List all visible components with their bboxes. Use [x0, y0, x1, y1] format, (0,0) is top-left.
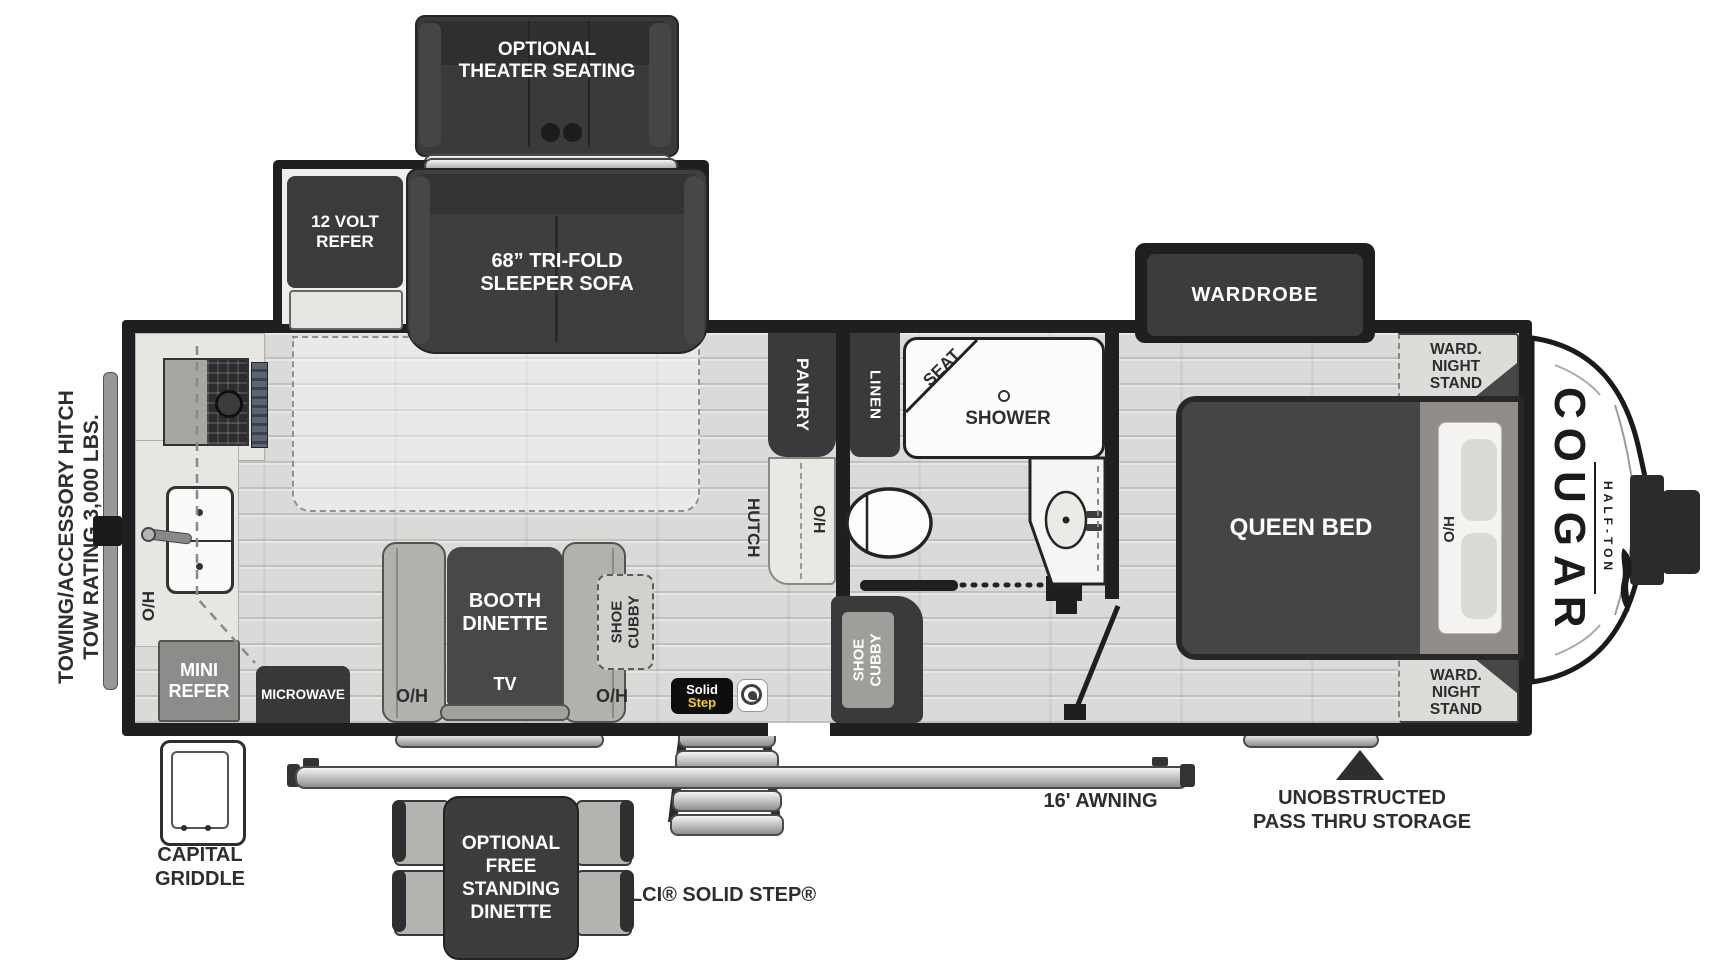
mini-refer-line2: REFER — [168, 681, 229, 702]
sofa-label: 68” TRI-FOLD SLEEPER SOFA — [408, 250, 706, 296]
shower-drain-icon — [998, 390, 1010, 402]
oh-right-label: O/H — [582, 686, 642, 707]
booth-line2: DINETTE — [447, 613, 563, 636]
bed-oh-label-wrap: O/H — [1437, 499, 1461, 559]
range-vent — [251, 362, 268, 448]
free-dinette-label: OPTIONAL FREE STANDING DINETTE — [462, 832, 560, 924]
brand-cougar: COUGAR — [1542, 362, 1596, 662]
refer-line2: REFER — [311, 232, 379, 252]
shoe-cubby-dinette-label: SHOE CUBBY — [609, 595, 643, 648]
rv-floorplan: TOWING/ACCESSORY HITCH TOW RATING 3,000 … — [0, 0, 1720, 968]
bed-oh-cabinet: O/H — [1438, 422, 1502, 634]
pillow-2 — [1461, 533, 1497, 619]
kingpin-box — [1662, 490, 1700, 574]
griddle-knob-1 — [181, 825, 187, 831]
mini-refer-label: MINI REFER — [168, 660, 229, 702]
lci-logo-icon — [737, 679, 768, 712]
free-dinette-line2: FREE — [462, 855, 560, 878]
shoe-cubby-bath-plate: SHOE CUBBY — [842, 612, 894, 708]
free-dinette-table: OPTIONAL FREE STANDING DINETTE — [443, 796, 579, 960]
queen-bed: QUEEN BED — [1182, 402, 1420, 654]
passthru-line1: UNOBSTRUCTED — [1237, 786, 1487, 810]
theater-label-line2: THEATER SEATING — [417, 61, 677, 83]
awning-cap-right — [1180, 764, 1195, 787]
free-dinette-chair-bl — [394, 870, 450, 936]
capital-griddle-inner — [171, 751, 229, 829]
lci-swirl — [748, 691, 757, 700]
awning-nub-right — [1152, 757, 1168, 766]
free-dinette-chair-tr — [576, 800, 632, 866]
pocket-door-panel — [860, 580, 958, 591]
microwave-label: MICROWAVE — [261, 687, 345, 702]
awning-tube — [295, 766, 1189, 789]
bed-oh-label: O/H — [1441, 516, 1458, 543]
sofa-back — [414, 174, 700, 214]
entry-door-opening — [765, 723, 833, 736]
free-dinette-line1: OPTIONAL — [462, 832, 560, 855]
burner-icon — [215, 390, 243, 418]
tv-label: TV — [447, 674, 563, 695]
shoe-cubby-line2: CUBBY — [626, 595, 643, 648]
hitch-receiver — [93, 516, 122, 546]
shower-seat-label: SEAT — [905, 331, 979, 405]
solid-step-badge: Solid Step — [671, 678, 733, 714]
sofa-line2: SLEEPER SOFA — [408, 273, 706, 296]
nightstand-bottom-label: WARD. NIGHT STAND — [1400, 667, 1512, 718]
slideout-footprint — [292, 336, 700, 512]
passthru-arrow-icon — [1336, 750, 1384, 780]
pocket-door-jamb-tab — [1056, 600, 1077, 614]
hutch-label: HUTCH — [743, 498, 763, 558]
sofa-line1: 68” TRI-FOLD — [408, 250, 706, 273]
sink-drain-2 — [196, 563, 203, 570]
wardrobe: WARDROBE — [1147, 254, 1363, 336]
sink-faucet-knob — [141, 527, 156, 542]
cooktop-griddle — [165, 360, 207, 444]
ns-line3: STAND — [1400, 701, 1512, 718]
wardrobe-label: WARDROBE — [1192, 284, 1319, 307]
refer-counter — [289, 290, 403, 330]
hutch-dash — [800, 463, 802, 579]
passthru-line2: PASS THRU STORAGE — [1237, 810, 1487, 834]
shower: SHOWER SEAT — [903, 337, 1105, 459]
linen-label: LINEN — [867, 370, 884, 420]
nightstand-bottom: WARD. NIGHT STAND — [1398, 657, 1519, 723]
oh-left-label: O/H — [382, 686, 442, 707]
pillow-1 — [1461, 439, 1497, 521]
step-tread-4 — [670, 814, 784, 836]
ns-line2: NIGHT — [1400, 358, 1512, 375]
griddle-label-line1: CAPITAL — [115, 843, 285, 867]
badge-step-text: Step — [688, 696, 716, 709]
chair-back — [392, 800, 406, 862]
shoe-cubby-bath-line2: CUBBY — [868, 633, 885, 686]
hutch-label-wrap: HUTCH — [740, 486, 766, 570]
wall-bath-right — [1105, 333, 1119, 599]
refrigerator-12v: 12 VOLT REFER — [287, 176, 403, 288]
capital-griddle-label: CAPITAL GRIDDLE — [115, 843, 285, 891]
awning-label: 16' AWNING — [1018, 790, 1183, 813]
refer-label: 12 VOLT REFER — [311, 212, 379, 252]
shoe-cubby-bath-label: SHOE CUBBY — [851, 633, 885, 686]
kitchen-oh-text: O/H — [139, 591, 159, 621]
mini-refer-line1: MINI — [168, 660, 229, 681]
sleeper-sofa: 68” TRI-FOLD SLEEPER SOFA — [406, 168, 708, 354]
cooktop — [163, 358, 249, 446]
queen-bed-assembly: QUEEN BED O/H — [1176, 396, 1524, 660]
ns-line2: NIGHT — [1400, 684, 1512, 701]
theater-label: OPTIONAL THEATER SEATING — [417, 39, 677, 83]
ns-line3: STAND — [1400, 375, 1512, 392]
pantry-label: PANTRY — [792, 358, 812, 432]
shoe-cubby-bath-line1: SHOE — [851, 633, 868, 686]
griddle-label-line2: GRIDDLE — [115, 867, 285, 891]
shoe-cubby-dinette: SHOE CUBBY — [597, 574, 654, 670]
booth-line1: BOOTH — [447, 590, 563, 613]
theater-cupholder-2 — [563, 123, 582, 142]
microwave: MICROWAVE — [256, 666, 350, 723]
pantry: PANTRY — [768, 333, 836, 457]
queen-bed-label: QUEEN BED — [1230, 514, 1373, 542]
mini-refrigerator: MINI REFER — [158, 640, 240, 722]
linen-cabinet: LINEN — [850, 333, 900, 457]
chair-back — [392, 870, 406, 932]
free-dinette-chair-tl — [394, 800, 450, 866]
free-dinette-line3: STANDING — [462, 878, 560, 901]
theater-seating: OPTIONAL THEATER SEATING — [415, 15, 679, 157]
shower-label: SHOWER — [948, 408, 1068, 430]
shoe-cubby-bath: SHOE CUBBY — [831, 596, 923, 723]
refer-line1: 12 VOLT — [311, 212, 379, 232]
capital-griddle — [160, 740, 246, 846]
cougar-silhouette-icon — [1612, 546, 1638, 616]
solid-step-label: LCI® SOLID STEP® — [618, 884, 828, 907]
theater-label-line1: OPTIONAL — [417, 39, 677, 61]
chair-back — [620, 800, 634, 862]
kitchen-oh-cabinet-label: O/H — [136, 576, 162, 636]
booth-label: BOOTH DINETTE — [447, 590, 563, 636]
step-tread-3 — [672, 790, 782, 812]
hutch-oh: O/H — [806, 479, 830, 559]
towing-line1: TOWING/ACCESSORY HITCH — [54, 367, 79, 707]
nightstand-top: WARD. NIGHT STAND — [1398, 333, 1519, 399]
shoe-cubby-line1: SHOE — [609, 595, 626, 648]
free-dinette-line4: DINETTE — [462, 901, 560, 924]
pocket-door-jamb — [1046, 576, 1082, 601]
tv — [440, 704, 570, 721]
booth-table: BOOTH DINETTE TV — [447, 547, 563, 705]
ns-line1: WARD. — [1400, 341, 1512, 358]
passthru-label: UNOBSTRUCTED PASS THRU STORAGE — [1237, 786, 1487, 834]
brand-cougar-text: COUGAR — [1544, 387, 1594, 637]
hutch-cabinet: O/H — [768, 457, 836, 585]
griddle-knob-2 — [205, 825, 211, 831]
hutch-oh-text: O/H — [809, 505, 827, 533]
sink-drain-1 — [196, 509, 203, 516]
theater-cupholder-1 — [541, 123, 560, 142]
nightstand-top-label: WARD. NIGHT STAND — [1400, 341, 1512, 392]
ns-line1: WARD. — [1400, 667, 1512, 684]
